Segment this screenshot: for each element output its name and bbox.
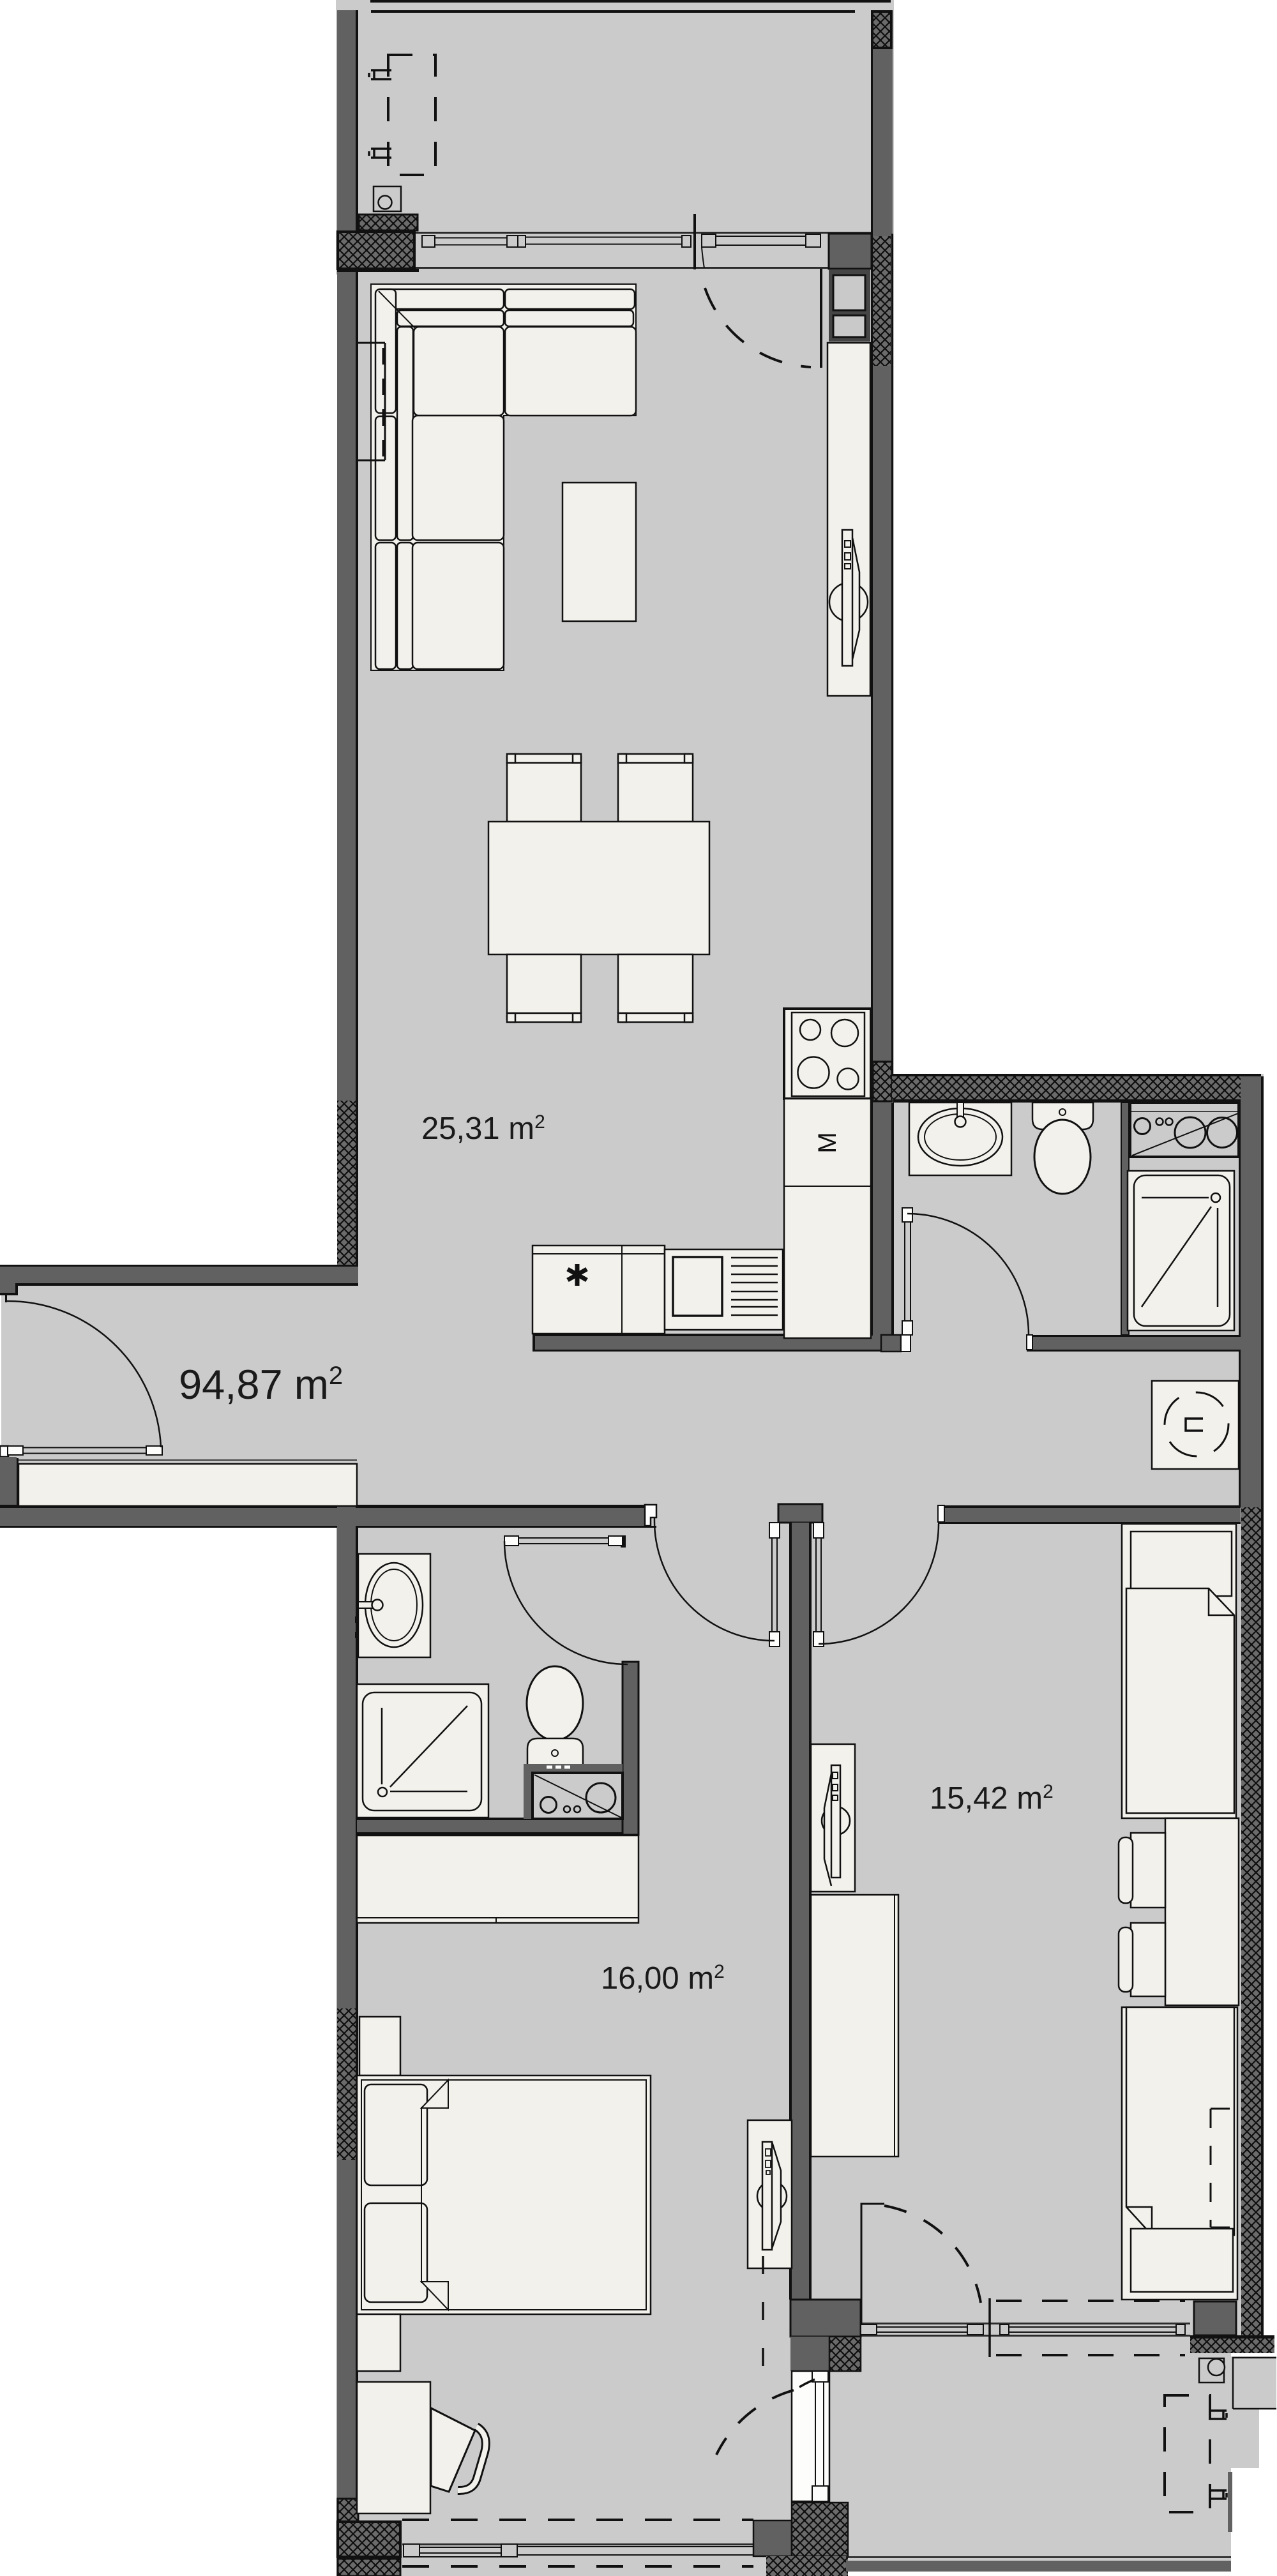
svg-text:25,31 m2: 25,31 m2 bbox=[421, 1111, 545, 1146]
svg-text:94,87 m2: 94,87 m2 bbox=[179, 1361, 343, 1408]
svg-text:M: M bbox=[813, 1132, 842, 1153]
svg-text:16,00 m2: 16,00 m2 bbox=[601, 1961, 725, 1996]
svg-text:15,42 m2: 15,42 m2 bbox=[930, 1781, 1054, 1816]
